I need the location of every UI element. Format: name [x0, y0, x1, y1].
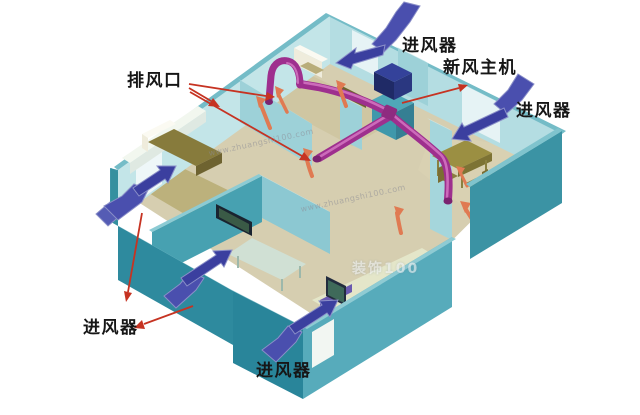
- ventilation-diagram: 排风口 进风器 新风主机 进风器 进风器 进风器 www.zhuangshi10…: [0, 0, 640, 415]
- label-exhaust-outlet: 排风口: [127, 73, 183, 90]
- label-air-inlet-top: 进风器: [402, 38, 458, 55]
- label-air-inlet-right: 进风器: [516, 103, 572, 120]
- watermark-logo: 装饰100: [352, 258, 419, 278]
- label-fresh-air-unit: 新风主机: [443, 60, 517, 77]
- label-air-inlet-bottom-left: 进风器: [83, 320, 139, 337]
- label-air-inlet-bottom: 进风器: [256, 363, 312, 380]
- pointer-inlet-left-2: [134, 306, 193, 329]
